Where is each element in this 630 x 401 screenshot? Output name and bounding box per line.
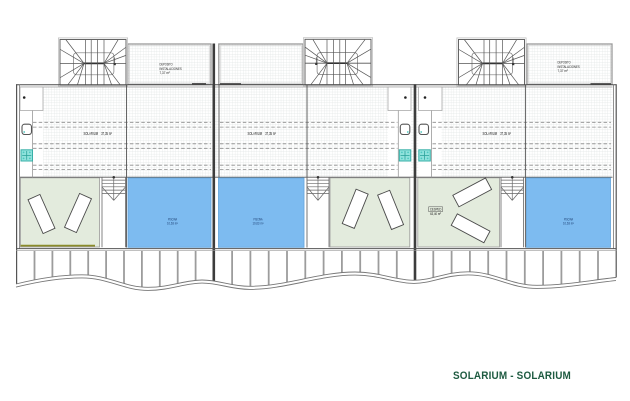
svg-text:10,63 m²: 10,63 m² <box>167 221 179 225</box>
svg-text:10,63 m²: 10,63 m² <box>253 221 265 225</box>
svg-text:SOLARIUM - SOLARIUM: SOLARIUM - SOLARIUM <box>453 370 571 382</box>
svg-text:7,37 m²: 7,37 m² <box>160 71 171 75</box>
svg-text:SOLARIUM 37,35 m²: SOLARIUM 37,35 m² <box>248 131 277 136</box>
svg-text:10,63 m²: 10,63 m² <box>563 221 575 225</box>
svg-text:SOLARIUM 37,35 m²: SOLARIUM 37,35 m² <box>483 131 512 136</box>
svg-text:7,37 m²: 7,37 m² <box>558 69 569 73</box>
svg-text:SOLARIUM 37,35 m²: SOLARIUM 37,35 m² <box>84 131 113 136</box>
svg-text:63,40 m²: 63,40 m² <box>430 212 442 216</box>
